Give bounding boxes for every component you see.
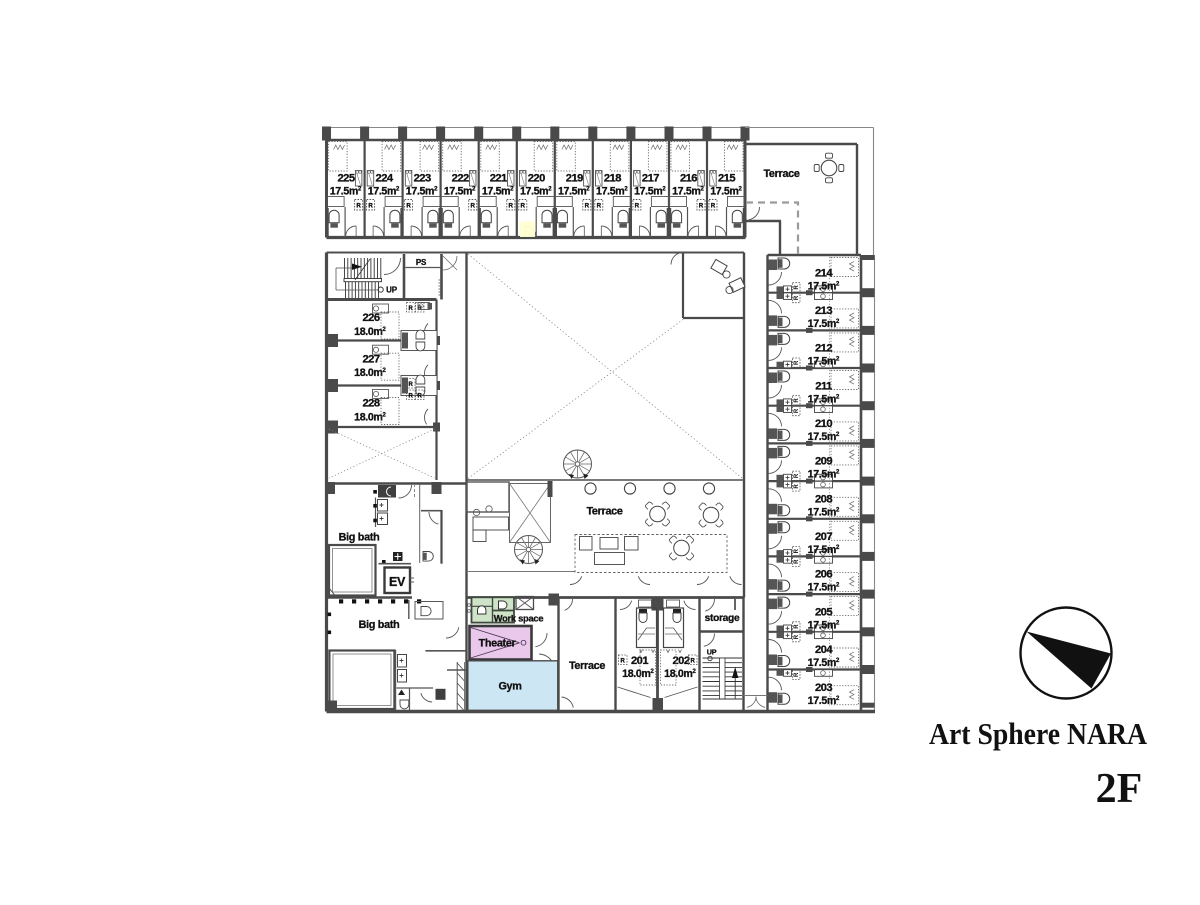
svg-text:216: 216 [680, 172, 697, 184]
svg-text:17.5m2: 17.5m2 [406, 185, 438, 197]
svg-text:R: R [794, 408, 800, 413]
svg-text:18.0m2: 18.0m2 [354, 367, 386, 379]
svg-text:R: R [794, 672, 800, 677]
svg-text:Terrace: Terrace [586, 506, 622, 518]
svg-text:17.5m2: 17.5m2 [330, 185, 362, 197]
svg-text:Art Sphere NARA: Art Sphere NARA [929, 716, 1148, 751]
svg-text:R: R [635, 203, 640, 210]
svg-text:17.5m2: 17.5m2 [596, 185, 628, 197]
svg-text:17.5m2: 17.5m2 [558, 185, 590, 197]
svg-text:206: 206 [815, 569, 832, 581]
svg-text:R: R [368, 203, 373, 210]
svg-text:R: R [356, 203, 361, 210]
svg-text:EV: EV [389, 575, 406, 589]
svg-text:17.5m2: 17.5m2 [368, 185, 400, 197]
svg-text:R: R [794, 295, 800, 300]
svg-text:17.5m2: 17.5m2 [444, 185, 476, 197]
svg-text:210: 210 [815, 418, 832, 430]
svg-text:217: 217 [642, 172, 659, 184]
svg-text:18.0m2: 18.0m2 [622, 668, 654, 680]
svg-text:17.5m2: 17.5m2 [808, 393, 840, 405]
svg-text:207: 207 [815, 531, 832, 543]
svg-text:R: R [418, 394, 423, 400]
svg-text:225: 225 [338, 172, 355, 184]
svg-text:R: R [621, 659, 626, 665]
svg-text:228: 228 [362, 398, 379, 410]
svg-text:R: R [409, 394, 414, 400]
svg-text:18.0m2: 18.0m2 [354, 326, 386, 338]
svg-text:R: R [794, 548, 800, 553]
svg-text:224: 224 [376, 172, 394, 184]
svg-text:18.0m2: 18.0m2 [354, 412, 386, 424]
svg-text:Big bath: Big bath [339, 532, 380, 544]
svg-text:R: R [794, 634, 800, 639]
svg-text:Terrace: Terrace [569, 660, 605, 672]
svg-text:202: 202 [672, 655, 689, 667]
svg-text:R: R [794, 559, 800, 564]
svg-text:221: 221 [490, 172, 507, 184]
svg-text:211: 211 [815, 380, 832, 392]
svg-text:220: 220 [528, 172, 545, 184]
svg-text:R: R [691, 659, 696, 665]
svg-text:R: R [794, 360, 800, 365]
svg-text:R: R [597, 203, 602, 210]
svg-text:Theater: Theater [479, 638, 517, 650]
svg-text:219: 219 [566, 172, 583, 184]
svg-text:17.5m2: 17.5m2 [808, 431, 840, 443]
svg-text:227: 227 [362, 354, 379, 366]
svg-text:214: 214 [815, 267, 833, 279]
svg-text:213: 213 [815, 305, 832, 317]
svg-text:2F: 2F [1096, 766, 1143, 812]
svg-text:17.5m2: 17.5m2 [808, 318, 840, 330]
svg-text:R: R [585, 203, 590, 210]
svg-text:222: 222 [452, 172, 469, 184]
svg-text:209: 209 [815, 456, 832, 468]
svg-text:storage: storage [705, 613, 740, 624]
svg-text:18.0m2: 18.0m2 [664, 668, 696, 680]
svg-text:17.5m2: 17.5m2 [634, 185, 666, 197]
svg-text:17.5m2: 17.5m2 [672, 185, 704, 197]
svg-text:Gym: Gym [498, 681, 521, 693]
svg-text:17.5m2: 17.5m2 [808, 657, 840, 669]
svg-text:PS: PS [416, 258, 427, 267]
svg-text:223: 223 [414, 172, 431, 184]
svg-text:17.5m2: 17.5m2 [808, 469, 840, 481]
svg-text:17.5m2: 17.5m2 [808, 356, 840, 368]
svg-text:17.5m2: 17.5m2 [808, 544, 840, 556]
svg-text:17.5m2: 17.5m2 [808, 582, 840, 594]
svg-text:17.5m2: 17.5m2 [808, 280, 840, 292]
svg-text:17.5m2: 17.5m2 [520, 185, 552, 197]
svg-text:R: R [794, 473, 800, 478]
svg-text:208: 208 [815, 493, 832, 505]
svg-text:205: 205 [815, 606, 832, 618]
svg-text:17.5m2: 17.5m2 [808, 506, 840, 518]
svg-text:Work space: Work space [494, 614, 544, 624]
svg-text:R: R [794, 398, 800, 403]
svg-text:17.5m2: 17.5m2 [808, 619, 840, 631]
svg-text:R: R [794, 285, 800, 290]
svg-text:17.5m2: 17.5m2 [710, 185, 742, 197]
svg-text:204: 204 [815, 644, 833, 656]
svg-text:Terrace: Terrace [763, 168, 799, 180]
svg-text:R: R [406, 203, 411, 210]
svg-text:R: R [794, 624, 800, 629]
svg-text:226: 226 [362, 312, 379, 324]
svg-text:17.5m2: 17.5m2 [482, 185, 514, 197]
svg-text:218: 218 [604, 172, 621, 184]
svg-text:R: R [699, 203, 704, 210]
svg-text:R: R [470, 203, 475, 210]
svg-text:203: 203 [815, 682, 832, 694]
svg-text:UP: UP [386, 286, 398, 295]
svg-text:UP: UP [707, 648, 717, 657]
svg-text:R: R [409, 382, 414, 388]
svg-text:212: 212 [815, 343, 832, 355]
svg-text:R: R [711, 203, 716, 210]
svg-text:17.5m2: 17.5m2 [808, 695, 840, 707]
svg-text:R: R [521, 203, 526, 210]
svg-text:Big bath: Big bath [359, 619, 400, 631]
svg-text:R: R [409, 306, 414, 312]
svg-text:215: 215 [718, 172, 735, 184]
svg-text:R: R [794, 484, 800, 489]
svg-text:R: R [509, 203, 514, 210]
